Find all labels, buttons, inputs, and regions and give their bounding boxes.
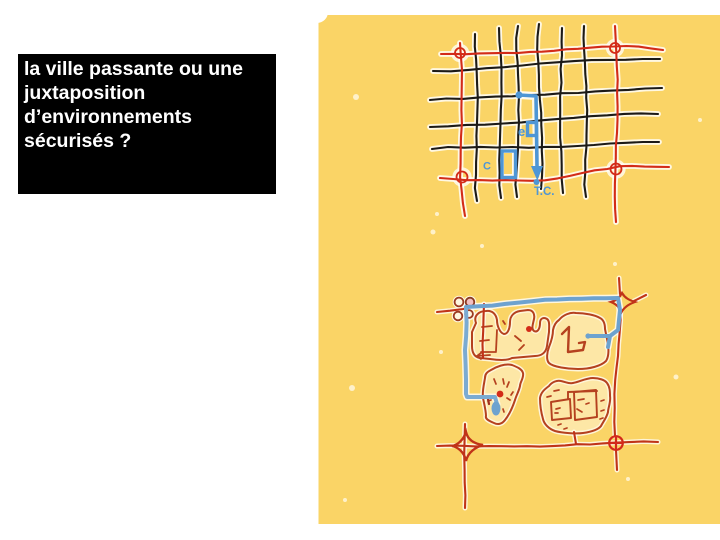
svg-text:C: C <box>483 161 491 173</box>
svg-text:T.C.: T.C. <box>534 186 554 198</box>
svg-text:e: e <box>518 124 525 139</box>
